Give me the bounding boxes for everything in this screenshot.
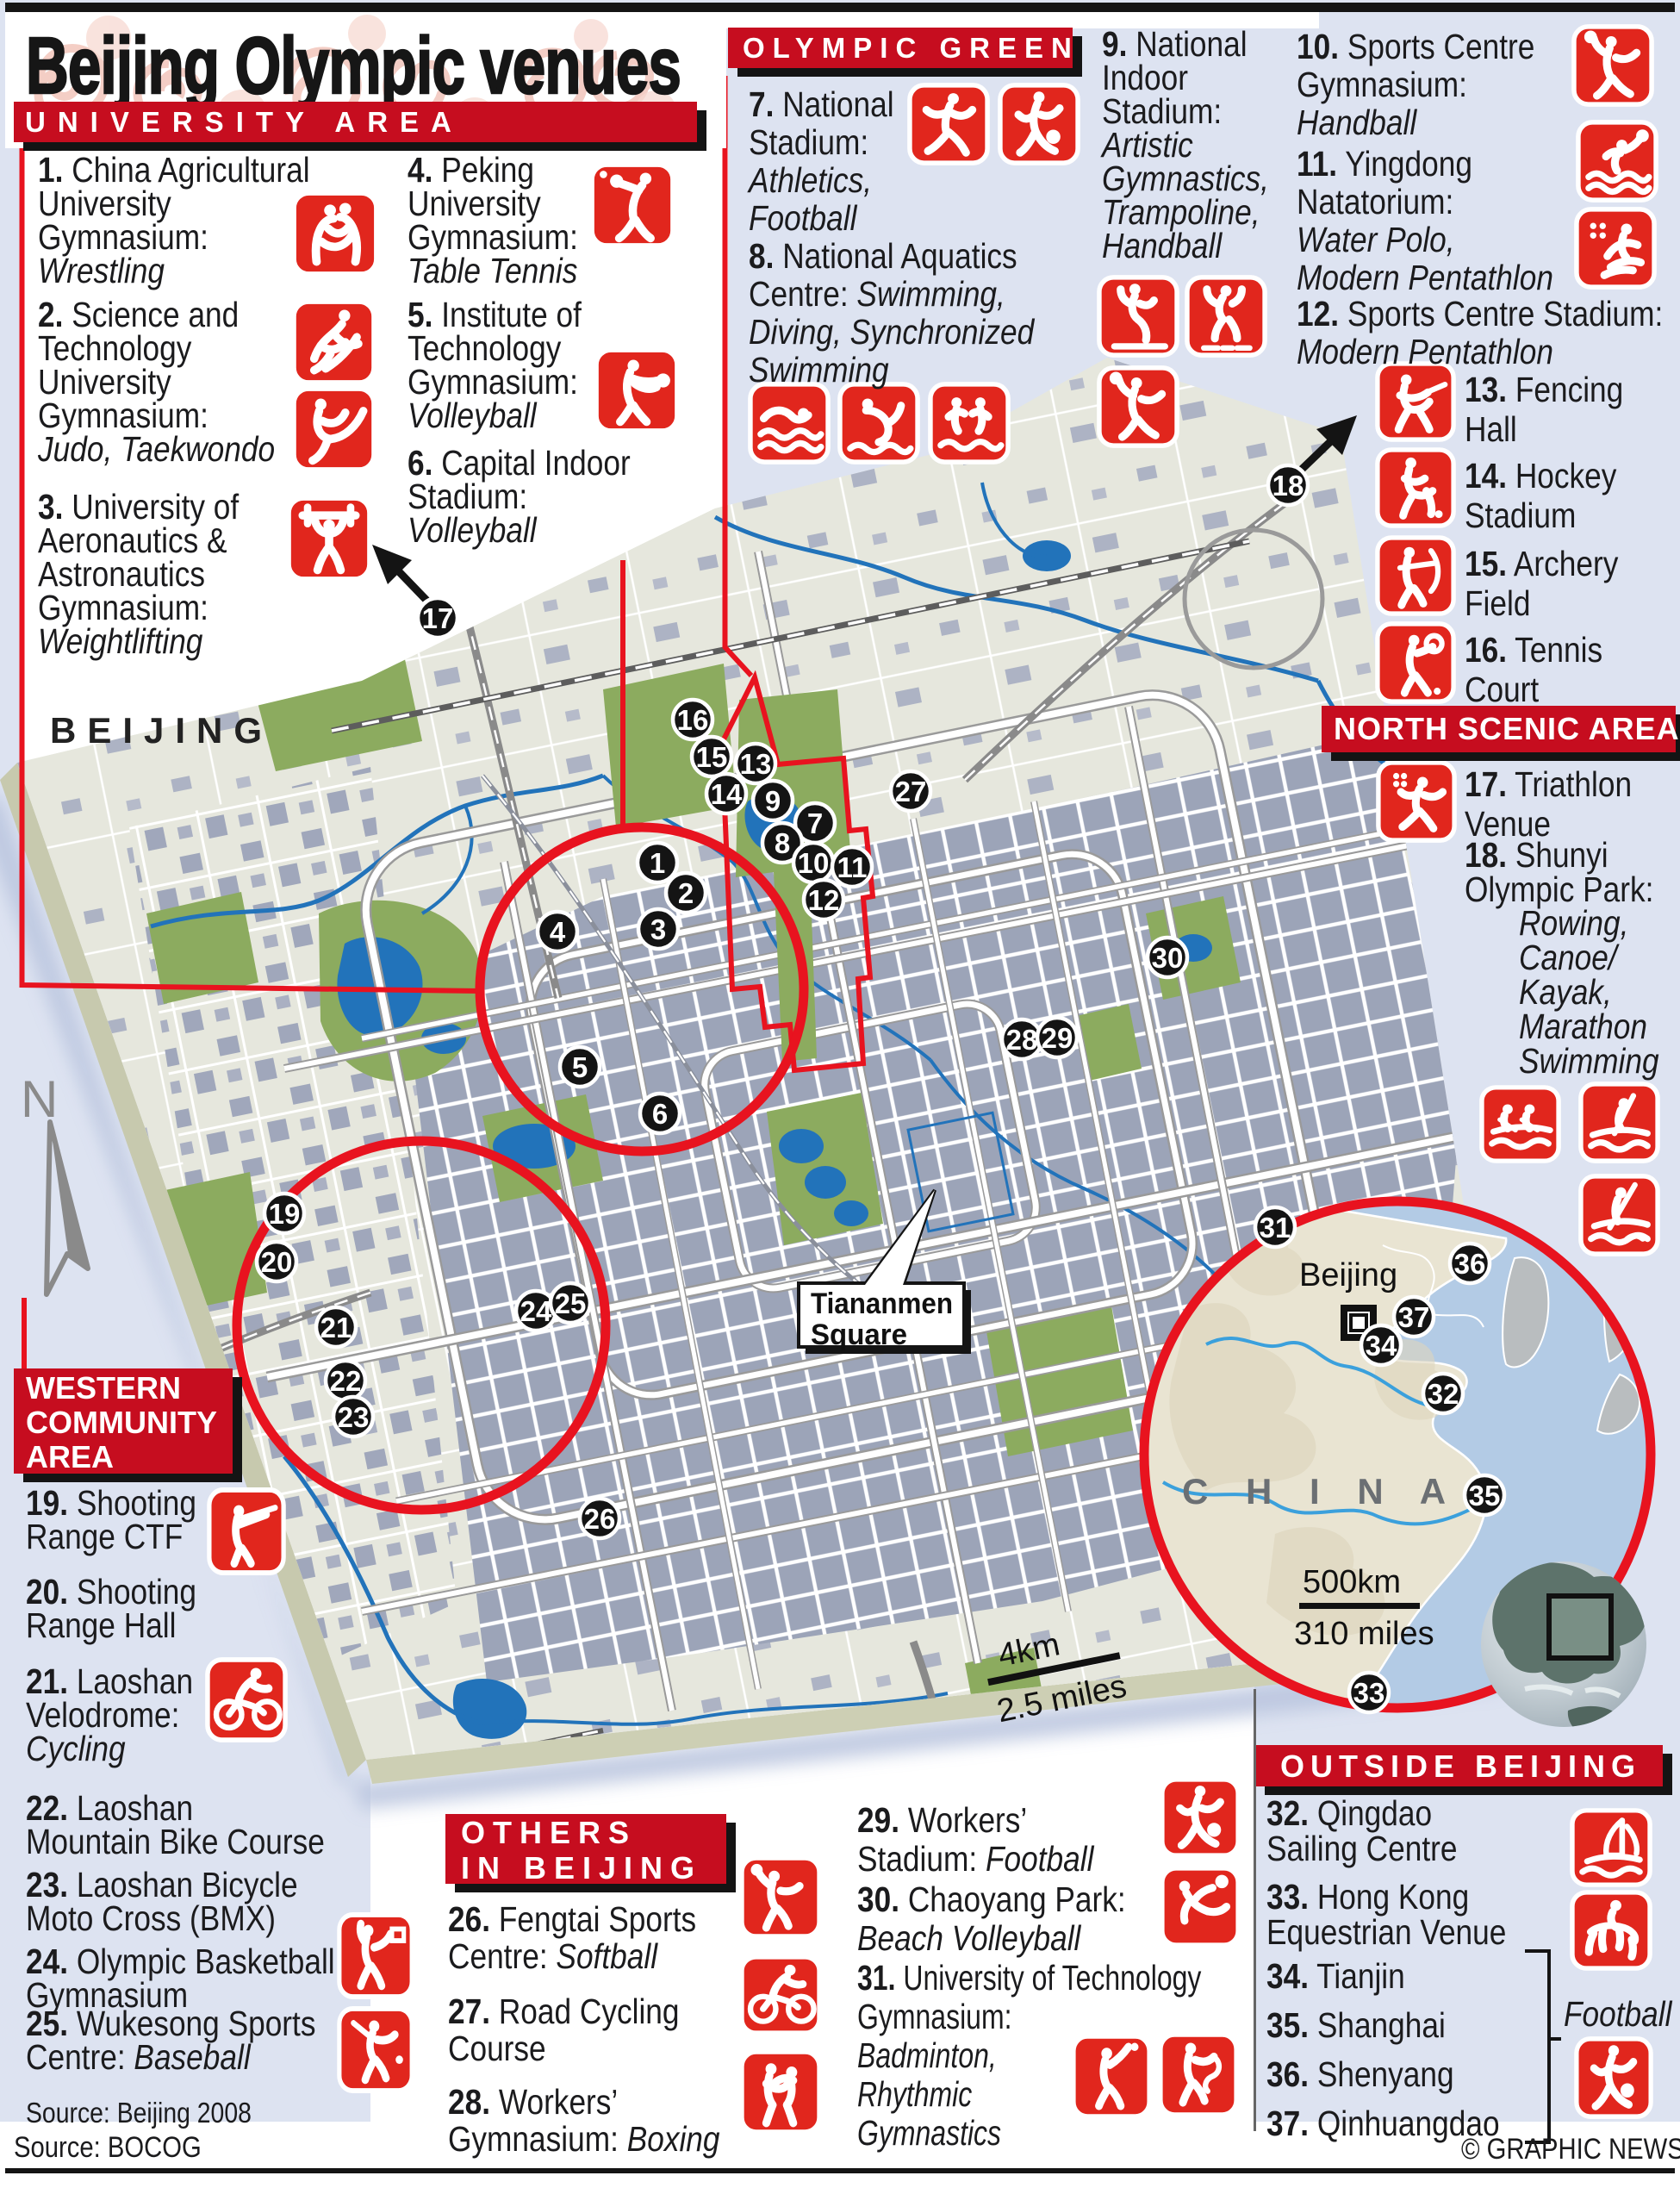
- svg-text:21: 21: [320, 1312, 352, 1343]
- svg-text:26: 26: [584, 1503, 616, 1535]
- svg-text:20: 20: [261, 1246, 293, 1278]
- svg-text:11: 11: [837, 851, 868, 883]
- svg-text:1: 1: [650, 847, 665, 879]
- svg-text:N: N: [21, 1070, 58, 1128]
- svg-text:37: 37: [1398, 1301, 1430, 1333]
- svg-text:Tiananmen: Tiananmen: [811, 1287, 953, 1320]
- svg-text:29: 29: [1042, 1022, 1073, 1054]
- svg-text:33: 33: [1353, 1677, 1385, 1709]
- svg-text:23: 23: [338, 1401, 370, 1433]
- svg-text:12: 12: [808, 884, 840, 916]
- svg-text:10: 10: [798, 847, 830, 879]
- svg-text:18: 18: [1272, 470, 1304, 502]
- svg-text:28: 28: [1006, 1024, 1038, 1056]
- svg-text:16: 16: [677, 704, 709, 736]
- svg-text:BEIJING: BEIJING: [50, 710, 273, 751]
- svg-text:25: 25: [555, 1287, 587, 1319]
- svg-text:31: 31: [1260, 1212, 1291, 1244]
- svg-text:19: 19: [269, 1198, 301, 1230]
- svg-text:22: 22: [330, 1365, 362, 1397]
- svg-text:17: 17: [422, 602, 454, 634]
- svg-text:14: 14: [711, 778, 743, 810]
- svg-text:Beijing: Beijing: [1299, 1257, 1397, 1293]
- svg-text:8: 8: [775, 827, 790, 859]
- svg-text:310 miles: 310 miles: [1294, 1616, 1434, 1652]
- svg-text:6: 6: [652, 1098, 668, 1130]
- svg-text:7: 7: [807, 807, 823, 839]
- svg-text:5: 5: [572, 1051, 588, 1083]
- svg-text:34: 34: [1366, 1330, 1397, 1362]
- svg-text:2: 2: [678, 877, 694, 909]
- svg-text:15: 15: [696, 741, 728, 773]
- svg-text:24: 24: [520, 1295, 552, 1327]
- svg-text:9: 9: [765, 785, 781, 817]
- svg-text:36: 36: [1454, 1248, 1486, 1280]
- svg-text:3: 3: [650, 913, 666, 945]
- svg-text:500km: 500km: [1303, 1564, 1401, 1600]
- svg-text:13: 13: [740, 748, 772, 780]
- svg-text:27: 27: [895, 776, 927, 807]
- svg-text:4: 4: [550, 916, 566, 948]
- svg-text:C H I N A: C H I N A: [1182, 1471, 1459, 1512]
- svg-text:32: 32: [1428, 1378, 1459, 1410]
- svg-text:30: 30: [1152, 942, 1184, 974]
- svg-text:Square: Square: [811, 1318, 907, 1351]
- svg-text:35: 35: [1469, 1480, 1501, 1512]
